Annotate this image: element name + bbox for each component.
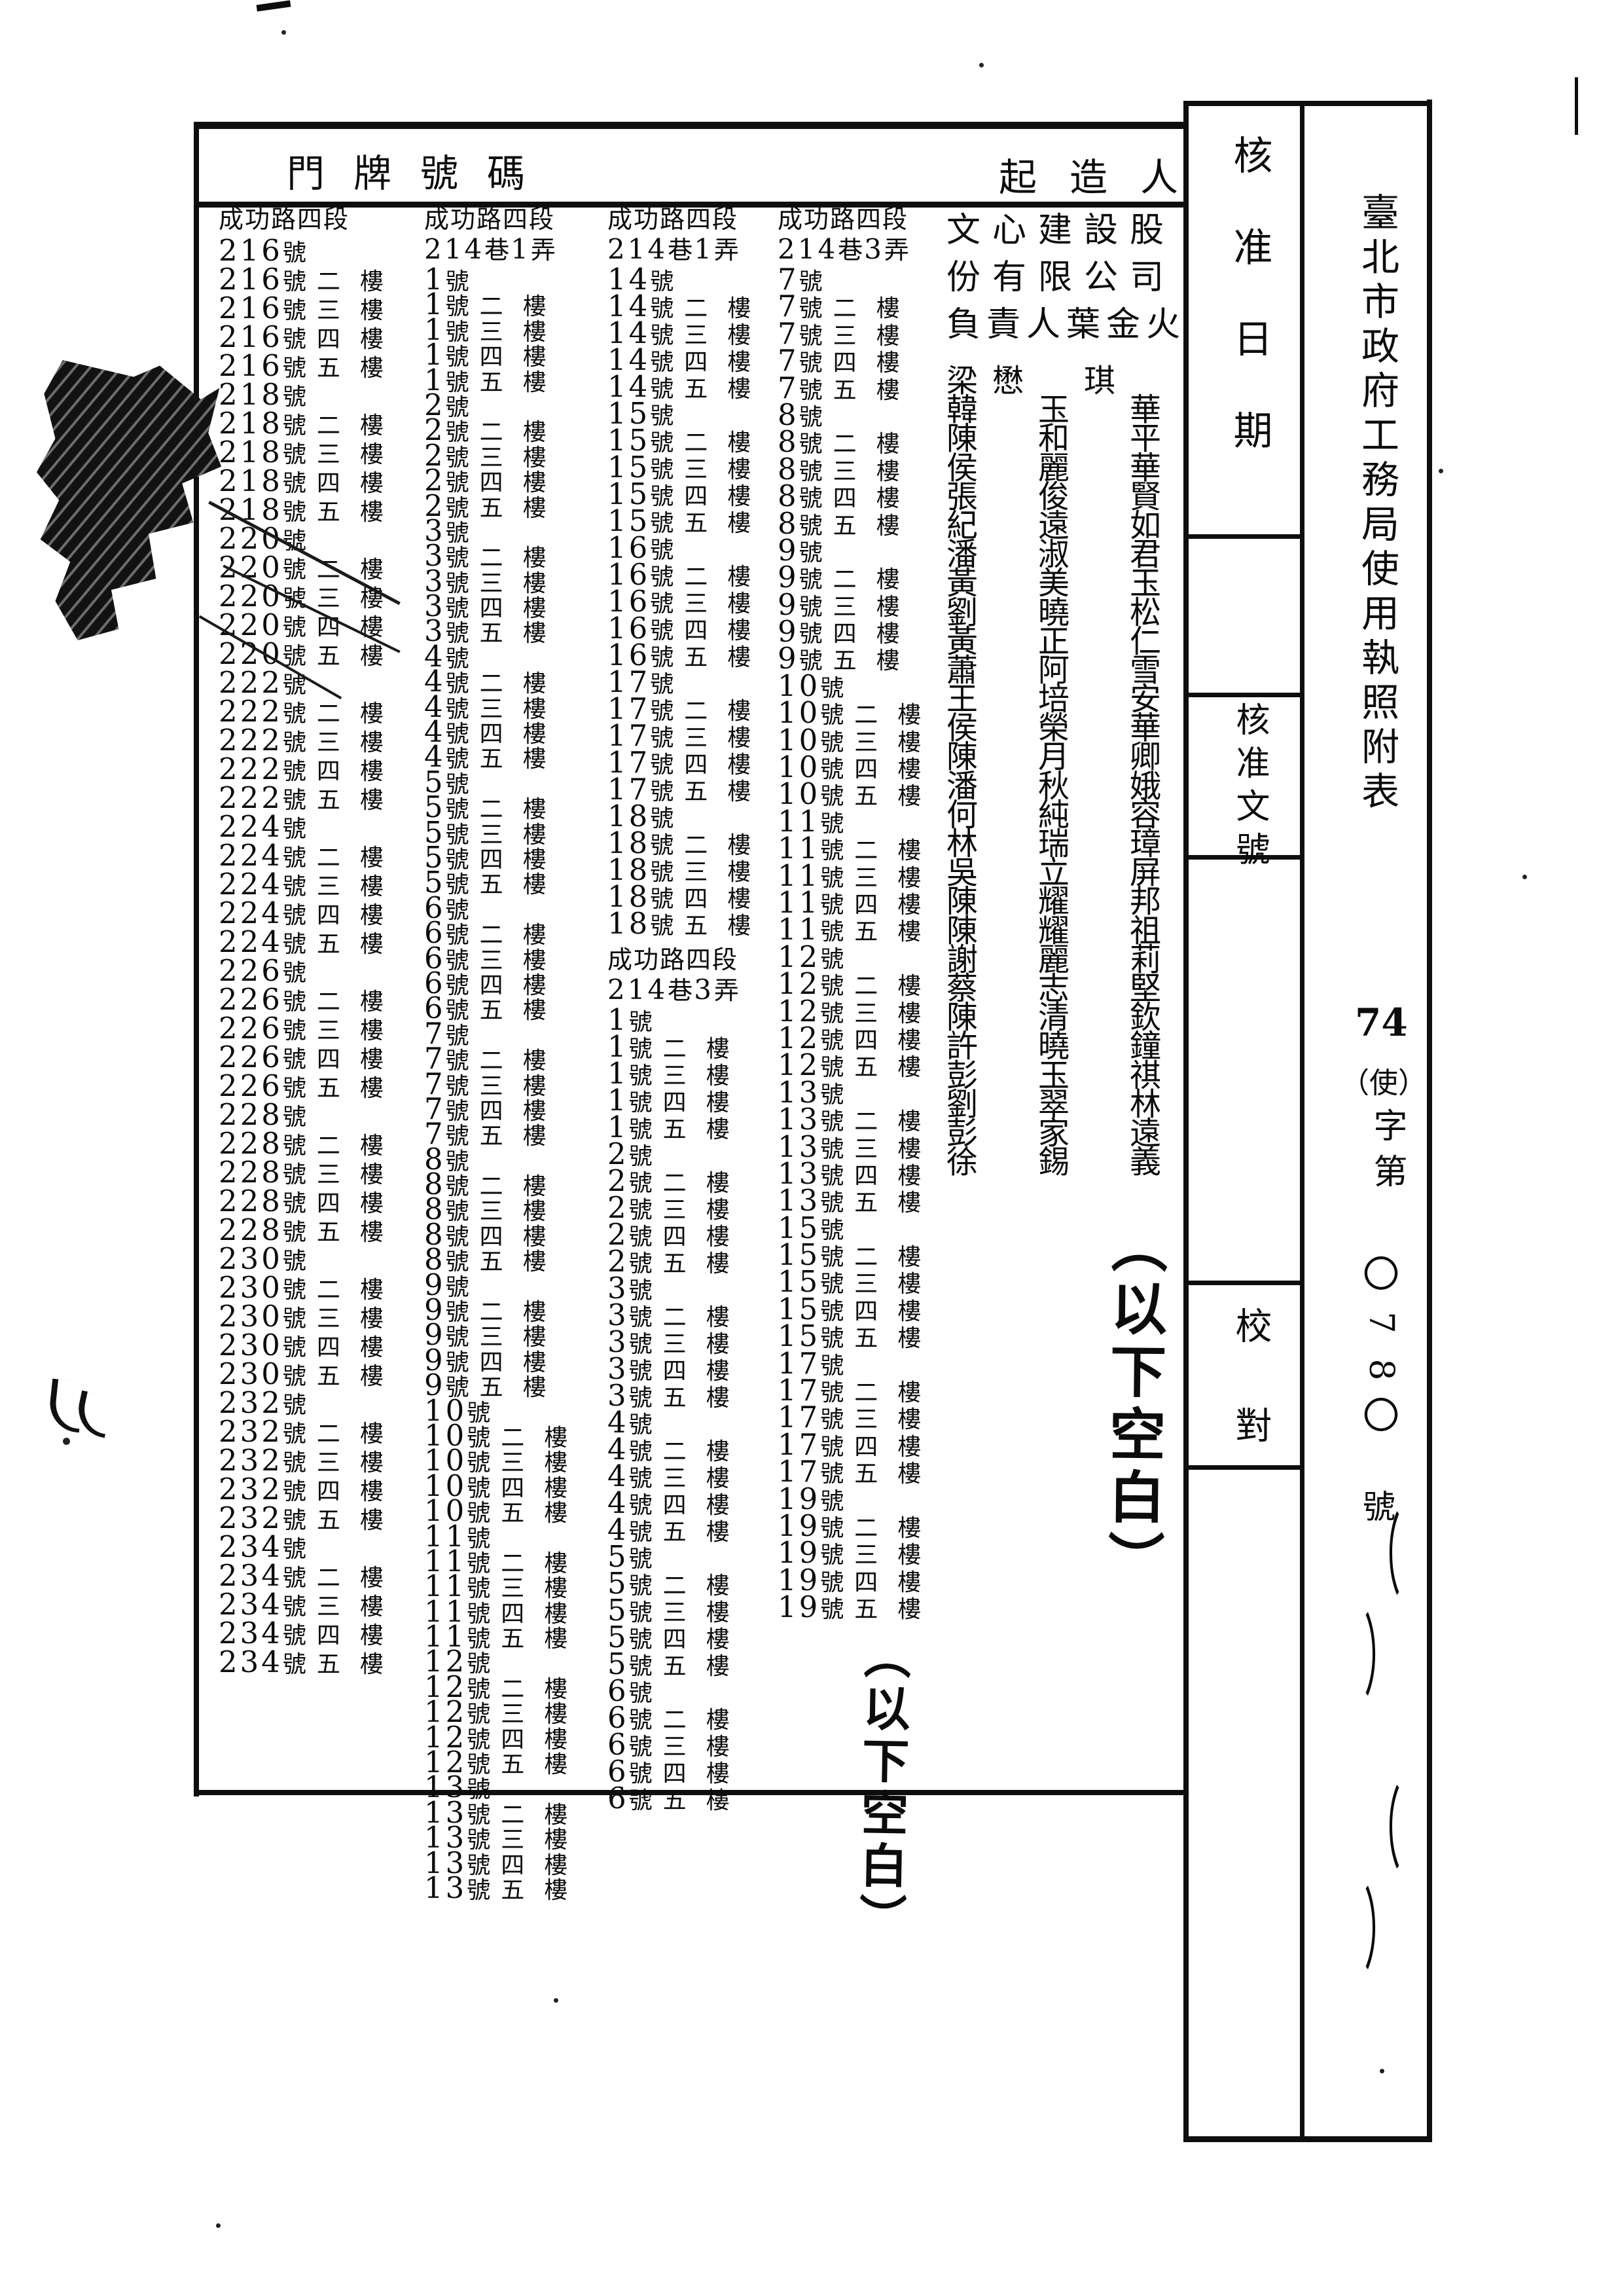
address-column-1: 成功路四段216號216號二樓216號三樓216號四樓216號五樓218號218… xyxy=(219,207,422,1676)
address-line: 11號二樓 xyxy=(424,1546,627,1571)
address-line: 222號三樓 xyxy=(219,725,422,754)
text-run: 號 xyxy=(283,845,306,871)
address-line: 6號五樓 xyxy=(607,1783,810,1810)
address-floor: 五樓 xyxy=(501,1500,587,1527)
builder-name-char: 義 xyxy=(1130,1146,1161,1178)
address-line: 5號五樓 xyxy=(607,1649,810,1676)
text-run: 號 xyxy=(467,1877,490,1904)
address-line: 226號四樓 xyxy=(219,1042,422,1071)
address-line: 230號 xyxy=(219,1244,422,1273)
address-floor: 三樓 xyxy=(317,1594,403,1620)
address-line: 4號五樓 xyxy=(424,742,627,767)
address-line: 15號三樓 xyxy=(778,1267,980,1294)
address-line: 216號二樓 xyxy=(219,264,422,293)
address-line: 10號四樓 xyxy=(424,1471,627,1496)
address-line: 234號 xyxy=(219,1532,422,1561)
address-line: 2號四樓 xyxy=(424,465,627,490)
proofread-cell-top-divider xyxy=(1186,1281,1301,1285)
builder-name-row: 侯麗華 xyxy=(946,452,1195,481)
address-floor: 二樓 xyxy=(317,1277,403,1303)
address-line: 5號四樓 xyxy=(424,843,627,867)
address-line: 19號 xyxy=(778,1484,980,1511)
ink-speck xyxy=(281,30,286,35)
address-line: 6號二樓 xyxy=(424,918,627,943)
text-run: 1 xyxy=(511,233,531,265)
blank-below-note-builders: （以下空白） xyxy=(1090,1216,1176,1594)
address-floor: 五樓 xyxy=(501,1877,587,1904)
text-run: 號 xyxy=(283,355,306,382)
company-name-line-1: 文心建設股 xyxy=(946,213,1195,261)
address-floor: 五樓 xyxy=(501,1626,587,1652)
text-run: 號 xyxy=(283,1622,306,1649)
text-run: 號 xyxy=(283,960,306,987)
address-line: 232號二樓 xyxy=(219,1417,422,1446)
address-line: 6號三樓 xyxy=(424,943,627,968)
text-run: 號 xyxy=(283,1161,306,1188)
text-run: 巷 xyxy=(484,236,511,264)
text-run: 弄 xyxy=(531,236,557,264)
street-header: 成功路四段 xyxy=(424,207,627,236)
address-floor: 四樓 xyxy=(317,1622,403,1649)
address-floor: 四樓 xyxy=(317,902,403,929)
text-run: 號 xyxy=(283,902,306,929)
text-run: 234 xyxy=(219,1645,283,1679)
address-line: 216號 xyxy=(219,236,422,264)
text-run: 214 xyxy=(778,233,838,265)
address-floor: 二樓 xyxy=(317,556,403,583)
address-floor: 五樓 xyxy=(663,1250,749,1277)
text-run: 巷 xyxy=(668,976,694,1005)
address-line: 12號三樓 xyxy=(424,1697,627,1722)
address-floor: 三樓 xyxy=(317,729,403,756)
text-run: 號 xyxy=(283,1449,306,1476)
address-floor: 五樓 xyxy=(684,913,770,939)
right-section-bottom-border xyxy=(1183,2136,1432,2142)
text-run: 號 xyxy=(283,1190,306,1217)
text-run: 號 xyxy=(283,989,306,1015)
address-line: 228號三樓 xyxy=(219,1157,422,1186)
address-floor: 五樓 xyxy=(480,1374,566,1401)
address-line: 226號五樓 xyxy=(219,1071,422,1100)
ink-speck xyxy=(1380,2069,1384,2073)
text-run: 號 xyxy=(283,1478,306,1505)
builder-name-row: 潘秋娥 xyxy=(946,771,1195,799)
address-line: 222號 xyxy=(219,668,422,697)
address-line: 230號四樓 xyxy=(219,1330,422,1359)
address-line: 17號五樓 xyxy=(778,1457,980,1484)
ink-speck xyxy=(554,1998,558,2003)
text-run: 號 xyxy=(283,1017,306,1044)
address-floor: 五樓 xyxy=(833,647,920,674)
builder-name-row: 陳耀邦 xyxy=(946,886,1195,915)
address-line: 1號五樓 xyxy=(424,365,627,390)
address-line: 5號五樓 xyxy=(424,867,627,892)
address-line: 234號三樓 xyxy=(219,1590,422,1618)
text-run: 號 xyxy=(283,1594,306,1620)
ink-speck xyxy=(1522,875,1527,879)
address-line: 218號三樓 xyxy=(219,437,422,466)
text-run: 號 xyxy=(283,1046,306,1073)
address-line: 1號三樓 xyxy=(424,315,627,340)
text-run: 號 xyxy=(283,614,306,641)
text-run: 弄 xyxy=(714,236,740,264)
address-line: 2號三樓 xyxy=(424,441,627,465)
address-line: 222號二樓 xyxy=(219,697,422,725)
street-header: 214巷1弄 xyxy=(424,236,627,264)
address-line: 11號三樓 xyxy=(424,1571,627,1596)
address-line: 11號四樓 xyxy=(424,1597,627,1622)
text-run: 號 xyxy=(283,1536,306,1563)
address-floor: 三樓 xyxy=(317,1017,403,1044)
address-number: 18號 xyxy=(607,924,674,936)
address-line: 220號 xyxy=(219,524,422,553)
form-title-vertical: 臺北市政府工務局使用執照附表 xyxy=(1350,192,1405,816)
address-line: 5號二樓 xyxy=(424,792,627,817)
street-header: 成功路四段 xyxy=(219,207,422,236)
address-floor: 四樓 xyxy=(317,470,403,497)
builder-name-row: 彭玉祺 xyxy=(946,1060,1195,1089)
address-floor: 二樓 xyxy=(317,701,403,727)
text-run: 19 xyxy=(778,1590,820,1624)
address-line: 3號三樓 xyxy=(424,566,627,591)
address-number: 13號 xyxy=(424,1888,490,1901)
address-line: 232號三樓 xyxy=(219,1446,422,1474)
address-line: 222號四樓 xyxy=(219,754,422,783)
builder-name-char: 懋 xyxy=(992,365,1024,397)
address-line: 220號三樓 xyxy=(219,581,422,610)
text-run: 號 xyxy=(629,1787,653,1814)
builder-name-row: 陳清欽 xyxy=(946,1002,1195,1030)
text-run: 號 xyxy=(799,485,823,512)
address-line: 6號二樓 xyxy=(607,1703,810,1730)
address-floor: 五樓 xyxy=(684,376,770,403)
address-line: 218號二樓 xyxy=(219,409,422,437)
address-line: 226號 xyxy=(219,956,422,985)
text-run: 214 xyxy=(607,974,668,1006)
address-line: 13號五樓 xyxy=(424,1873,627,1898)
address-line: 7號二樓 xyxy=(424,1044,627,1068)
address-line: 6號五樓 xyxy=(424,993,627,1018)
text-run: 號 xyxy=(283,297,306,324)
address-line: 3號五樓 xyxy=(424,616,627,641)
address-floor: 五樓 xyxy=(854,1596,941,1623)
address-floor: 五樓 xyxy=(317,1651,403,1678)
address-line: 218號五樓 xyxy=(219,495,422,524)
address-floor: 四樓 xyxy=(833,485,920,512)
address-column-2: 成功路四段214巷1弄1號1號二樓1號三樓1號四樓1號五樓2號2號二樓2號三樓2… xyxy=(424,207,627,1898)
text-run: 18 xyxy=(607,906,650,941)
address-line: 232號五樓 xyxy=(219,1503,422,1532)
address-line: 4號二樓 xyxy=(424,666,627,691)
address-line: 13號五樓 xyxy=(778,1186,980,1212)
text-run: 214 xyxy=(607,233,668,265)
license-number-digits: 〇78〇 xyxy=(1352,1252,1410,1440)
page-edge-artifact xyxy=(1575,77,1578,135)
text-run: 號 xyxy=(283,384,306,410)
text-run: 號 xyxy=(283,1248,306,1275)
builder-name-row: 陳耀祖 xyxy=(946,915,1195,944)
address-line: 1號 xyxy=(424,264,627,289)
text-run: 號 xyxy=(283,1565,306,1592)
builder-name-row: 陳和平 xyxy=(946,423,1195,452)
address-floor: 五樓 xyxy=(480,495,566,522)
address-floor: 三樓 xyxy=(317,1161,403,1188)
license-category: （使） xyxy=(1340,1059,1422,1101)
address-floor: 三樓 xyxy=(317,1449,403,1476)
address-line: 6號 xyxy=(607,1676,810,1703)
address-floor: 五樓 xyxy=(663,1653,749,1680)
text-run: 號 xyxy=(283,441,306,468)
text-run: 號 xyxy=(283,816,306,843)
text-run: 號 xyxy=(283,326,306,353)
builder-name-row: 彭家遠 xyxy=(946,1118,1195,1146)
approval-doc-cell-top-divider xyxy=(1186,693,1301,697)
address-line: 9號四樓 xyxy=(424,1345,627,1370)
address-floor: 二樓 xyxy=(317,1133,403,1159)
address-floor: 五樓 xyxy=(480,620,566,647)
address-line: 9號二樓 xyxy=(424,1295,627,1320)
address-line: 19號三樓 xyxy=(778,1538,980,1565)
address-floor: 三樓 xyxy=(317,873,403,900)
address-line: 224號三樓 xyxy=(219,869,422,898)
address-floor: 四樓 xyxy=(317,1190,403,1217)
address-floor: 五樓 xyxy=(663,1787,749,1814)
address-floor: 三樓 xyxy=(317,441,403,468)
address-floor: 五樓 xyxy=(663,1385,749,1412)
address-line: 226號三樓 xyxy=(219,1013,422,1042)
address-line: 13號三樓 xyxy=(424,1823,627,1848)
address-floor: 五樓 xyxy=(317,787,403,814)
address-line: 216號四樓 xyxy=(219,322,422,351)
builder-name-row: 謝麗莉 xyxy=(946,944,1195,973)
address-line: 224號五樓 xyxy=(219,927,422,956)
text-run: 214 xyxy=(424,233,484,265)
approval-doc-number-label: 核准文號 xyxy=(1225,702,1274,875)
text-run: 號 xyxy=(283,556,306,583)
address-floor: 五樓 xyxy=(501,1751,587,1778)
address-floor: 五樓 xyxy=(317,1363,403,1390)
text-run: 號 xyxy=(283,499,306,526)
address-line: 17號二樓 xyxy=(778,1376,980,1402)
text-run: 3 xyxy=(864,233,884,265)
text-run: 巷 xyxy=(668,236,694,264)
address-number: 234號 xyxy=(219,1662,306,1675)
scan-artifact-dash xyxy=(257,0,291,11)
address-line: 234號四樓 xyxy=(219,1618,422,1647)
builder-name-row: 劉曉松 xyxy=(946,597,1195,626)
address-line: 232號四樓 xyxy=(219,1474,422,1503)
address-floor: 五樓 xyxy=(480,1248,566,1275)
table-top-border xyxy=(194,122,1189,129)
address-line: 12號二樓 xyxy=(424,1672,627,1697)
address-line: 5號四樓 xyxy=(607,1622,810,1649)
address-line: 8號三樓 xyxy=(424,1194,627,1219)
address-line: 9號三樓 xyxy=(424,1320,627,1345)
builder-name-char: 錫 xyxy=(1038,1146,1070,1178)
address-floor: 五樓 xyxy=(854,1461,941,1487)
builder-name-row: 劉翠林 xyxy=(946,1089,1195,1118)
address-floor: 二樓 xyxy=(317,412,403,439)
address-line: 9號五樓 xyxy=(424,1370,627,1395)
address-line: 2號五樓 xyxy=(424,491,627,516)
proofread-label: 校對 xyxy=(1224,1307,1277,1506)
address-floor: 五樓 xyxy=(317,499,403,526)
address-line: 228號四樓 xyxy=(219,1186,422,1215)
address-line: 10號五樓 xyxy=(424,1496,627,1521)
builder-name-row: 韓玉華 xyxy=(946,394,1195,423)
license-digit: 8 xyxy=(1357,1341,1405,1398)
company-name-line-2: 份有限公司 xyxy=(946,261,1195,308)
address-floor: 五樓 xyxy=(317,1219,403,1246)
ink-speck xyxy=(216,2223,221,2228)
address-line: 19號四樓 xyxy=(778,1565,980,1592)
address-line: 7號三樓 xyxy=(424,1069,627,1094)
address-line: 12號四樓 xyxy=(424,1722,627,1747)
address-floor: 二樓 xyxy=(317,268,403,295)
address-floor: 五樓 xyxy=(480,871,566,898)
builder-name-row: 王培安 xyxy=(946,683,1195,712)
address-floor: 二樓 xyxy=(317,845,403,871)
address-line: 224號四樓 xyxy=(219,898,422,927)
address-floor: 五樓 xyxy=(854,1054,941,1081)
builder-name-row: 林瑞璋 xyxy=(946,828,1195,857)
blank-paren-open-2: （ xyxy=(1363,1788,1402,1876)
license-zi-di: 字第 xyxy=(1363,1108,1412,1199)
address-line: 226號二樓 xyxy=(219,985,422,1013)
text-run: 成功路四段 xyxy=(219,205,350,234)
builder-name-row: 黃正仁 xyxy=(946,626,1195,655)
address-line: 17號 xyxy=(778,1349,980,1376)
address-line: 3號四樓 xyxy=(424,591,627,616)
address-number: 19號 xyxy=(778,1607,844,1620)
address-line: 222號五樓 xyxy=(219,783,422,812)
address-floor: 五樓 xyxy=(317,1507,403,1534)
builders-list: 文心建設股份有限公司負責人葉金火梁懋琪韓玉華陳和平侯麗華張俊賢紀遠如潘淑君黃美玉… xyxy=(946,213,1195,1175)
address-line: 11號五樓 xyxy=(424,1622,627,1647)
blank-below-note-addresses: （以下空白） xyxy=(844,1631,918,1946)
address-line: 2號二樓 xyxy=(424,415,627,440)
address-floor: 三樓 xyxy=(317,297,403,324)
address-line: 12號五樓 xyxy=(424,1747,627,1772)
address-line: 8號四樓 xyxy=(424,1220,627,1245)
text-run: 號 xyxy=(283,1392,306,1419)
address-line: 15號四樓 xyxy=(778,1294,980,1321)
address-line: 10號二樓 xyxy=(424,1421,627,1446)
license-digit: 〇 xyxy=(1352,1393,1410,1440)
text-run: 3 xyxy=(694,974,714,1006)
text-run: 號 xyxy=(283,931,306,958)
address-floor: 二樓 xyxy=(317,1421,403,1448)
address-line: 7號四樓 xyxy=(424,1094,627,1119)
builder-name-row: 徐錫義 xyxy=(946,1146,1195,1175)
text-run: 弄 xyxy=(714,976,740,1005)
text-run: 號 xyxy=(283,701,306,727)
builder-header: 起造人 xyxy=(999,147,1211,202)
address-line: 230號二樓 xyxy=(219,1273,422,1302)
builder-name-row: 梁懋琪 xyxy=(946,365,1195,394)
text-run: 成功路四段 xyxy=(778,205,908,234)
text-run: 號 xyxy=(283,1651,306,1678)
license-year: 74 xyxy=(1355,1000,1407,1045)
address-line: 15號二樓 xyxy=(778,1240,980,1267)
text-run: 成功路四段 xyxy=(607,205,738,234)
address-line: 19號五樓 xyxy=(778,1592,980,1619)
text-run: 號 xyxy=(283,1219,306,1246)
builder-name-char: 琪 xyxy=(1084,365,1115,397)
text-run: 號 xyxy=(283,240,306,266)
approval-date-label: 核准日期 xyxy=(1221,135,1278,501)
address-line: 1號四樓 xyxy=(424,340,627,365)
text-run: 巷 xyxy=(838,236,864,264)
text-run: 號 xyxy=(283,873,306,900)
address-line: 10號三樓 xyxy=(424,1446,627,1470)
text-run: 號 xyxy=(283,729,306,756)
address-line: 15號 xyxy=(778,1213,980,1240)
title-column-right-border xyxy=(1427,100,1432,2142)
ink-speck xyxy=(1439,469,1443,473)
address-line: 6號三樓 xyxy=(607,1730,810,1757)
text-run: 號 xyxy=(283,1305,306,1332)
address-floor: 四樓 xyxy=(317,758,403,785)
address-line: 230號三樓 xyxy=(219,1302,422,1330)
builder-name-row: 何純容 xyxy=(946,799,1195,828)
address-number: 6號 xyxy=(607,1798,653,1811)
builder-name-row: 吳立屏 xyxy=(946,857,1195,886)
address-line: 216號三樓 xyxy=(219,293,422,322)
text-run: 號 xyxy=(283,1104,306,1131)
builder-name-row: 蕭阿雪 xyxy=(946,655,1195,683)
text-run: 號 xyxy=(283,1133,306,1159)
address-floor: 四樓 xyxy=(317,1334,403,1361)
address-line: 230號五樓 xyxy=(219,1359,422,1388)
address-line: 4號三樓 xyxy=(424,692,627,717)
ink-speck xyxy=(979,63,984,67)
address-floor: 五樓 xyxy=(684,778,770,805)
builder-name-row: 張俊賢 xyxy=(946,481,1195,510)
builder-name-row: 黃美玉 xyxy=(946,568,1195,596)
text-run: 成功路四段 xyxy=(607,945,738,974)
address-floor: 五樓 xyxy=(854,919,941,945)
address-line: 17號四樓 xyxy=(778,1430,980,1457)
approval-column-right-border xyxy=(1300,103,1304,2142)
text-run: 號 xyxy=(283,470,306,497)
address-line: 216號五樓 xyxy=(219,351,422,380)
address-line: 228號 xyxy=(219,1100,422,1129)
address-line: 218號 xyxy=(219,380,422,409)
address-floor: 四樓 xyxy=(317,1478,403,1505)
address-floor: 二樓 xyxy=(854,1108,941,1135)
address-line: 224號 xyxy=(219,812,422,841)
address-floor: 五樓 xyxy=(317,355,403,382)
table-left-border xyxy=(194,122,199,1796)
address-line: 234號五樓 xyxy=(219,1647,422,1676)
address-floor: 五樓 xyxy=(480,746,566,773)
text-run: 成功路四段 xyxy=(424,205,555,234)
address-line: 19號二樓 xyxy=(778,1511,980,1538)
address-line: 8號二樓 xyxy=(424,1169,627,1194)
address-floor: 四樓 xyxy=(317,1046,403,1073)
text-run: 號 xyxy=(283,1277,306,1303)
address-floor: 五樓 xyxy=(480,997,566,1024)
text-run: 號 xyxy=(283,412,306,439)
right-section-top-border xyxy=(1183,101,1432,106)
address-floor: 五樓 xyxy=(663,1519,749,1546)
address-floor: 二樓 xyxy=(317,989,403,1015)
address-line: 228號五樓 xyxy=(219,1215,422,1244)
principal-line: 負責人葉金火 xyxy=(946,308,1195,365)
text-run: 號 xyxy=(283,758,306,785)
address-floor: 五樓 xyxy=(480,1123,566,1150)
